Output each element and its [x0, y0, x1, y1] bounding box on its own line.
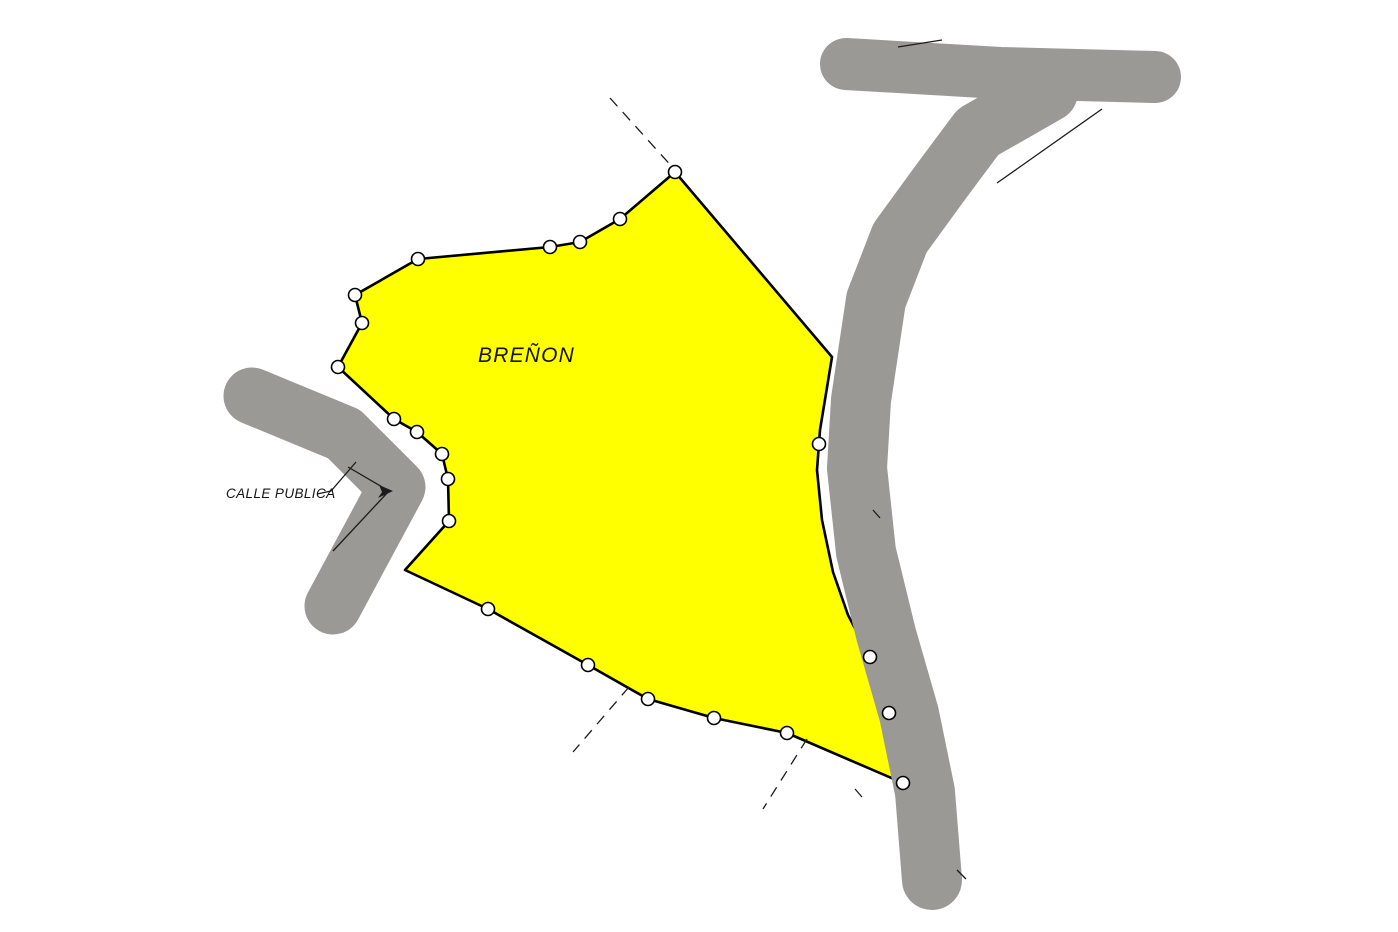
- parcel-vertex-marker: [781, 727, 794, 740]
- parcel-vertex-marker: [349, 289, 362, 302]
- parcel-vertex-marker: [412, 253, 425, 266]
- parcel-vertex-marker: [669, 166, 682, 179]
- dashed-extension-bottom-left: [573, 687, 629, 752]
- survey-tick-3: [855, 789, 862, 797]
- parcel-map: BREÑON CALLE PUBLICA: [0, 0, 1398, 932]
- dashed-extension-bottom-right: [763, 739, 807, 809]
- dashed-extension-top: [610, 98, 674, 169]
- parcel-vertex-marker: [614, 213, 627, 226]
- parcel-vertex-marker: [442, 473, 455, 486]
- parcel-vertex-marker: [436, 448, 449, 461]
- parcel-vertex-marker: [813, 438, 826, 451]
- parcel-vertex-marker: [574, 236, 587, 249]
- parcel-vertex-marker: [582, 659, 595, 672]
- parcel-vertex-marker: [356, 317, 369, 330]
- parcel-vertex-marker: [708, 712, 721, 725]
- parcel-vertex-marker: [443, 515, 456, 528]
- parcel-vertex-marker: [482, 603, 495, 616]
- road-right-branch: [846, 64, 1155, 77]
- parcel-vertex-marker: [411, 426, 424, 439]
- parcel-vertex-marker: [544, 241, 557, 254]
- parcel-vertex-marker: [332, 361, 345, 374]
- parcel-vertex-marker: [897, 777, 910, 790]
- parcel-vertex-marker: [642, 693, 655, 706]
- parcel-vertex-marker: [883, 707, 896, 720]
- parcel-vertex-marker: [864, 651, 877, 664]
- map-canvas: [0, 0, 1398, 932]
- parcel-vertex-marker: [388, 413, 401, 426]
- road-calle-publica: [252, 396, 397, 606]
